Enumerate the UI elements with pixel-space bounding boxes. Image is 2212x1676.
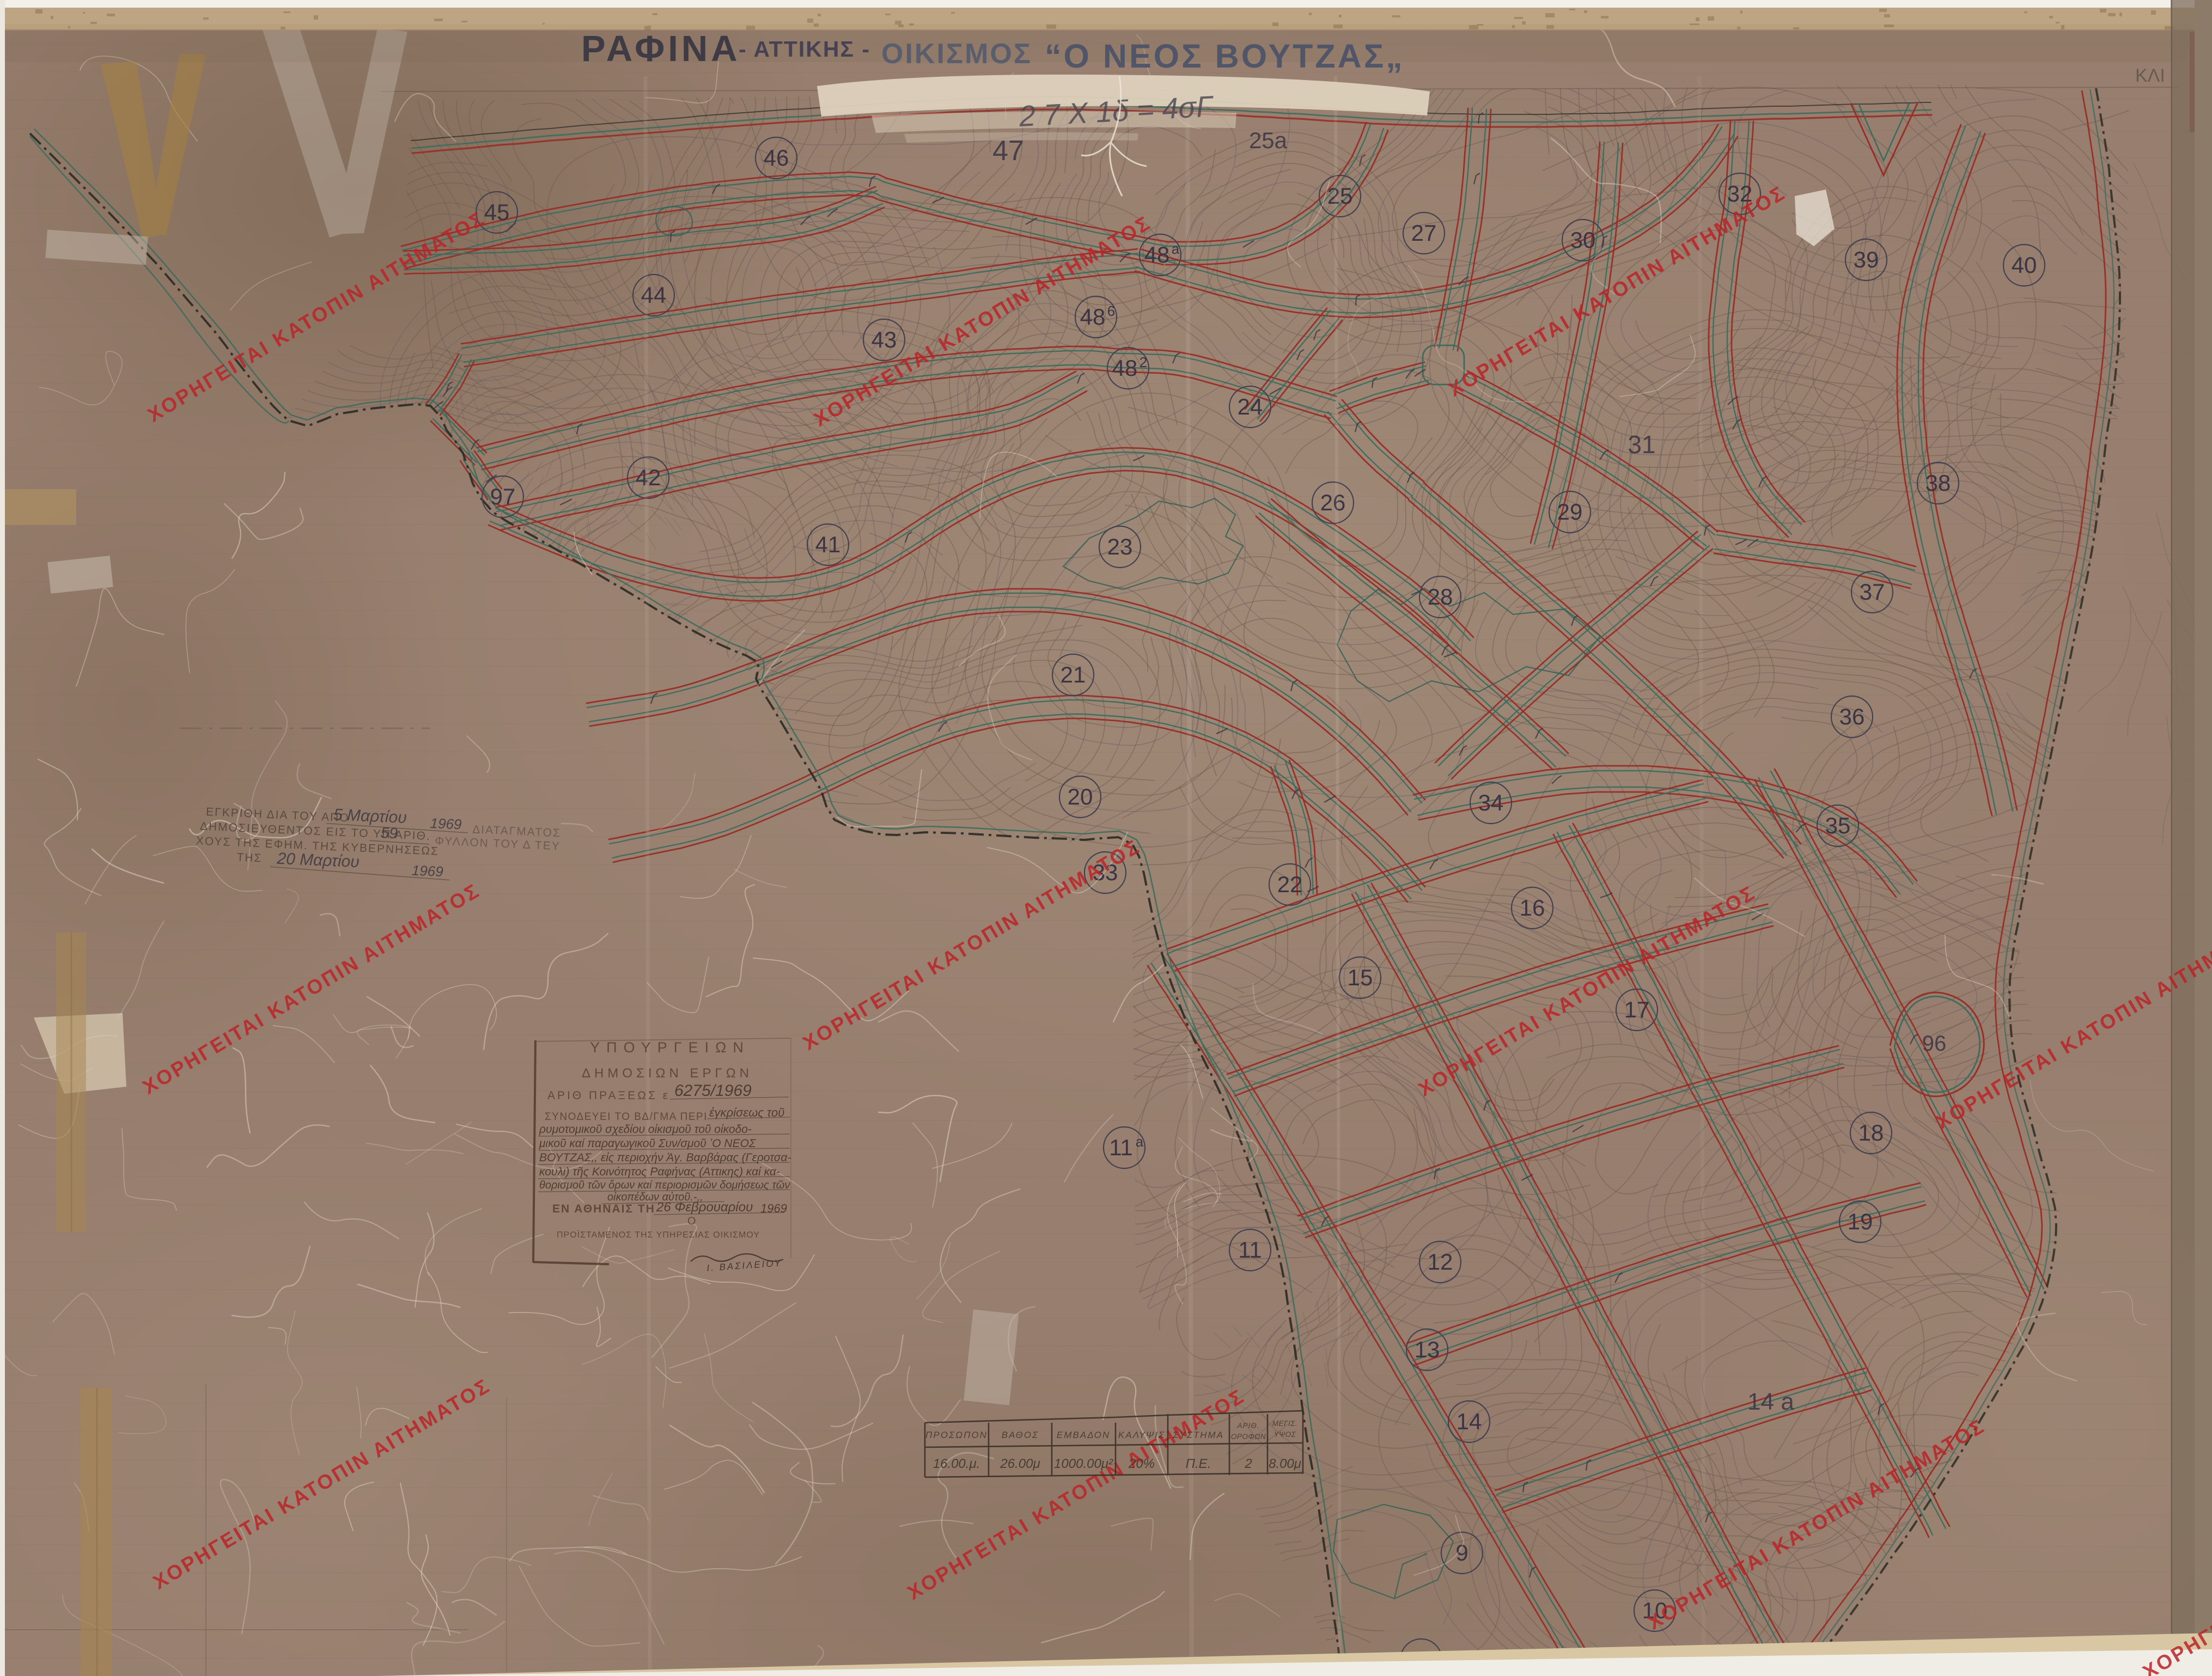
svg-text:24: 24	[1238, 394, 1263, 419]
svg-text:19: 19	[1848, 1209, 1873, 1234]
svg-text:43: 43	[872, 327, 897, 352]
svg-text:ΟΡΟΦΩΝ: ΟΡΟΦΩΝ	[1231, 1433, 1266, 1441]
svg-text:11: 11	[1109, 1135, 1133, 1160]
svg-text:18: 18	[1858, 1120, 1884, 1145]
svg-text:16.00.μ.: 16.00.μ.	[933, 1456, 980, 1471]
svg-text:ΚΛΙ: ΚΛΙ	[2135, 65, 2165, 86]
svg-text:22: 22	[1277, 871, 1303, 897]
svg-text:5 Μαρτίου: 5 Μαρτίου	[333, 806, 407, 827]
svg-text:6: 6	[1107, 303, 1115, 319]
svg-text:27: 27	[1411, 220, 1437, 246]
svg-text:ΚΑΛΥΨΙΣ: ΚΑΛΥΨΙΣ	[1118, 1430, 1165, 1440]
svg-text:29: 29	[1557, 499, 1583, 525]
svg-text:ΒΟΥΤΖΑΣ,, εἰς περιοχήν Ἁγ. Βαρ: ΒΟΥΤΖΑΣ,, εἰς περιοχήν Ἁγ. Βαρβάρας (Γερ…	[539, 1151, 791, 1164]
svg-text:“Ο ΝΕΟΣ ΒΟΥΤΖΑΣ„: “Ο ΝΕΟΣ ΒΟΥΤΖΑΣ„	[1045, 38, 1405, 75]
svg-text:1969: 1969	[411, 862, 443, 880]
svg-text:2: 2	[1244, 1456, 1252, 1471]
svg-text:ΣΥΝΟΔΕΥΕΙ ΤΟ ΒΔ/ΓΜΑ ΠΕΡΙ: ΣΥΝΟΔΕΥΕΙ ΤΟ ΒΔ/ΓΜΑ ΠΕΡΙ	[545, 1111, 708, 1123]
svg-text:28: 28	[1428, 584, 1453, 610]
svg-text:26.00μ: 26.00μ	[1000, 1456, 1040, 1471]
svg-text:13: 13	[1415, 1337, 1440, 1362]
svg-text:ΒΑΘΟΣ: ΒΑΘΟΣ	[1002, 1430, 1039, 1440]
svg-text:40: 40	[2012, 252, 2037, 278]
svg-text:41: 41	[815, 532, 841, 557]
svg-text:1969: 1969	[430, 815, 462, 832]
svg-text:25a: 25a	[1249, 127, 1288, 153]
svg-text:34: 34	[1478, 790, 1504, 815]
svg-text:16: 16	[1520, 895, 1545, 921]
svg-text:11: 11	[1238, 1237, 1262, 1263]
svg-text:ΣΥΣΤΗΜΑ: ΣΥΣΤΗΜΑ	[1172, 1430, 1224, 1440]
svg-text:48: 48	[1144, 242, 1170, 267]
svg-text:ΕΝ ΑΘΗΝΑΙΣ ΤΗ: ΕΝ ΑΘΗΝΑΙΣ ΤΗ	[552, 1203, 655, 1215]
svg-text:9: 9	[1455, 1540, 1468, 1565]
svg-text:1000.00μ²: 1000.00μ²	[1054, 1456, 1113, 1471]
svg-text:ΑΡΙΘ.: ΑΡΙΘ.	[1236, 1422, 1259, 1430]
svg-text:14: 14	[1457, 1409, 1482, 1434]
svg-text:35: 35	[1825, 813, 1851, 838]
svg-text:ΠΡΟΪΣΤΑΜΕΝΟΣ ΤΗΣ ΥΠΗΡΕΣΙΑΣ ΟΙΚ: ΠΡΟΪΣΤΑΜΕΝΟΣ ΤΗΣ ΥΠΗΡΕΣΙΑΣ ΟΙΚΙΣΜΟΥ	[557, 1230, 760, 1240]
svg-text:- ΑΤΤΙΚΗΣ -: - ΑΤΤΙΚΗΣ -	[739, 36, 870, 62]
svg-text:κουλι) τῆς Κοινότητος Ραφήνας: κουλι) τῆς Κοινότητος Ραφήνας (Αττικης) …	[539, 1166, 780, 1178]
svg-text:ΟΙΚΙΣΜΟΣ: ΟΙΚΙΣΜΟΣ	[881, 38, 1032, 70]
svg-text:15: 15	[1348, 965, 1373, 990]
svg-text:36: 36	[1839, 704, 1865, 729]
svg-text:Π.Ε.: Π.Ε.	[1186, 1456, 1211, 1471]
svg-text:ΑΡΙΘ ΠΡΑΞΕΩΣ ε: ΑΡΙΘ ΠΡΑΞΕΩΣ ε	[547, 1089, 670, 1102]
svg-text:Ο: Ο	[687, 1215, 696, 1227]
svg-text:38: 38	[1925, 470, 1951, 496]
svg-text:17: 17	[1624, 997, 1650, 1022]
svg-text:ρυμοτομικοῦ σχεδίου οἰκισμοῦ: ρυμοτομικοῦ σχεδίου οἰκισμοῦ τοῦ οἰκοδο-	[539, 1123, 752, 1136]
svg-text:ΔΗΜΟΣΙΩΝ ΕΡΓΩΝ: ΔΗΜΟΣΙΩΝ ΕΡΓΩΝ	[582, 1066, 753, 1081]
svg-text:23: 23	[1107, 534, 1133, 559]
svg-text:25: 25	[1327, 183, 1353, 209]
svg-text:39: 39	[1854, 247, 1879, 272]
svg-text:20%: 20%	[1128, 1456, 1155, 1471]
svg-text:ΕΜΒΑΔΟΝ: ΕΜΒΑΔΟΝ	[1057, 1430, 1110, 1440]
svg-text:ΠΡΟΣΩΠΟΝ: ΠΡΟΣΩΠΟΝ	[925, 1430, 988, 1440]
svg-text:a: a	[1172, 241, 1180, 257]
svg-text:46: 46	[764, 145, 789, 170]
svg-text:8.00μ: 8.00μ	[1269, 1456, 1301, 1471]
svg-text:97: 97	[490, 484, 516, 509]
svg-text:ΡΑΦΙΝΑ: ΡΑΦΙΝΑ	[581, 28, 741, 69]
svg-text:a: a	[1136, 1133, 1144, 1150]
svg-text:12: 12	[1428, 1249, 1453, 1275]
svg-text:21: 21	[1061, 662, 1086, 687]
svg-text:31: 31	[1628, 430, 1655, 459]
svg-text:θορισμοῦ τῶν ὅρων καί περιορισ: θορισμοῦ τῶν ὅρων καί περιορισμῶν δομήσε…	[539, 1179, 790, 1191]
svg-text:48: 48	[1112, 355, 1138, 381]
svg-text:30: 30	[1570, 227, 1596, 253]
svg-text:ΤΗΣ: ΤΗΣ	[236, 851, 263, 865]
svg-text:37: 37	[1860, 579, 1885, 605]
svg-text:96: 96	[1922, 1032, 1947, 1056]
svg-text:14 a: 14 a	[1747, 1388, 1794, 1415]
svg-text:ΜΕΓΙΣ.: ΜΕΓΙΣ.	[1272, 1419, 1298, 1428]
svg-text:ΥΠΟΥΡΓΕΙΩΝ: ΥΠΟΥΡΓΕΙΩΝ	[590, 1039, 750, 1056]
svg-text:20: 20	[1068, 784, 1093, 809]
svg-text:μικοῦ καί παραγωγικοῦ Συν/σμοῦ: μικοῦ καί παραγωγικοῦ Συν/σμοῦ ʽΟ ΝΕΟΣ	[539, 1137, 757, 1150]
svg-text:6275/1969: 6275/1969	[674, 1082, 752, 1100]
svg-text:26: 26	[1320, 490, 1346, 515]
svg-text:ΥΨΟΣ: ΥΨΟΣ	[1274, 1430, 1296, 1439]
svg-text:2: 2	[1139, 354, 1147, 370]
svg-text:48: 48	[1080, 304, 1106, 330]
svg-text:45: 45	[484, 199, 510, 225]
